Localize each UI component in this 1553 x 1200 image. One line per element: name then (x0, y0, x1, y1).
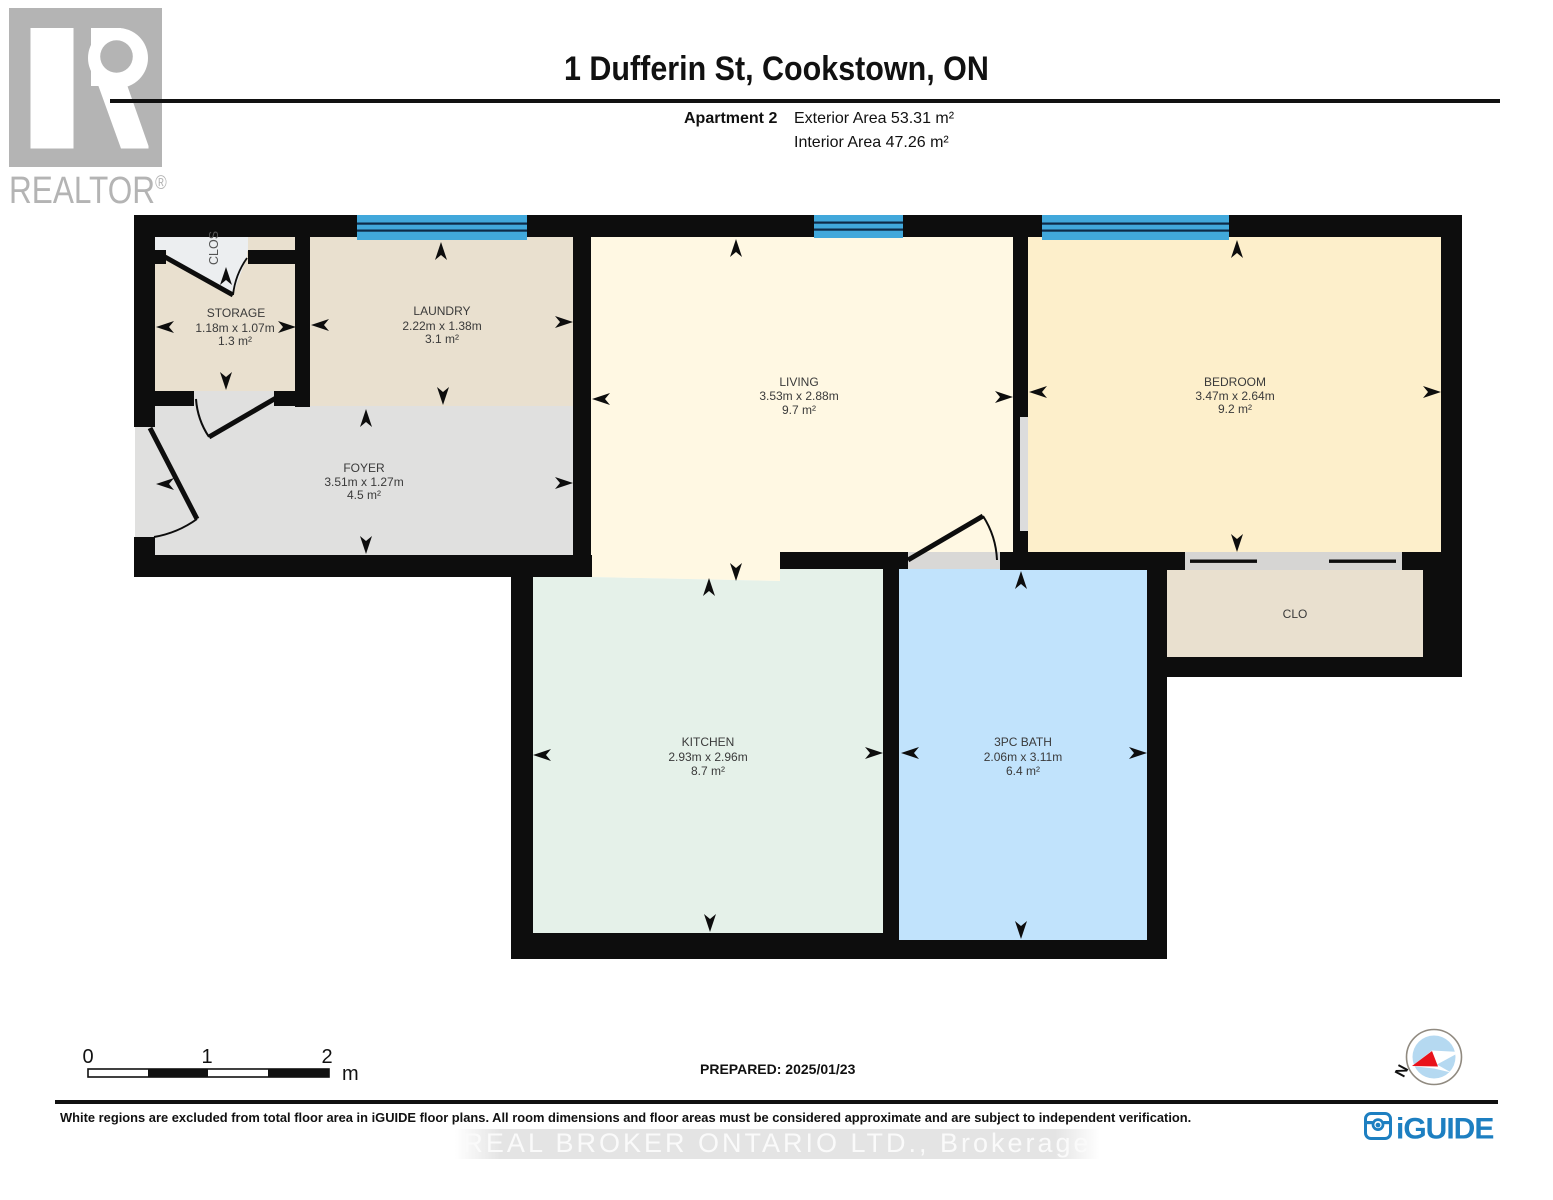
svg-text:3.47m x 2.64m: 3.47m x 2.64m (1195, 389, 1274, 403)
svg-text:3.53m x 2.88m: 3.53m x 2.88m (759, 389, 838, 403)
svg-text:2.93m x 2.96m: 2.93m x 2.96m (668, 750, 747, 764)
svg-text:2.06m x 3.11m: 2.06m x 3.11m (984, 750, 1062, 764)
svg-text:8.7 m²: 8.7 m² (691, 764, 725, 778)
svg-text:4.5 m²: 4.5 m² (347, 488, 381, 502)
svg-text:3.51m x 1.27m: 3.51m x 1.27m (324, 475, 403, 489)
svg-text:BEDROOM: BEDROOM (1204, 375, 1266, 389)
svg-text:STORAGE: STORAGE (207, 306, 265, 320)
svg-text:2.22m x 1.38m: 2.22m x 1.38m (402, 319, 481, 333)
svg-text:1: 1 (201, 1046, 212, 1068)
svg-text:3PC BATH: 3PC BATH (994, 735, 1052, 749)
svg-text:iGUIDE: iGUIDE (1396, 1113, 1493, 1146)
svg-text:m: m (342, 1063, 359, 1085)
svg-text:9.7 m²: 9.7 m² (782, 403, 816, 417)
svg-text:CLO: CLO (1283, 607, 1308, 621)
svg-text:2: 2 (321, 1046, 332, 1068)
svg-text:LAUNDRY: LAUNDRY (413, 304, 470, 318)
svg-text:CLOS: CLOS (207, 231, 221, 265)
svg-text:LIVING: LIVING (779, 375, 818, 389)
svg-text:0: 0 (82, 1046, 93, 1068)
svg-text:3.1 m²: 3.1 m² (425, 332, 459, 346)
svg-text:1.18m x 1.07m: 1.18m x 1.07m (195, 321, 274, 335)
svg-text:9.2 m²: 9.2 m² (1218, 402, 1252, 416)
svg-text:1.3 m²: 1.3 m² (218, 334, 252, 348)
svg-text:6.4 m²: 6.4 m² (1006, 764, 1040, 778)
svg-text:FOYER: FOYER (343, 461, 385, 475)
svg-text:KITCHEN: KITCHEN (682, 735, 735, 749)
